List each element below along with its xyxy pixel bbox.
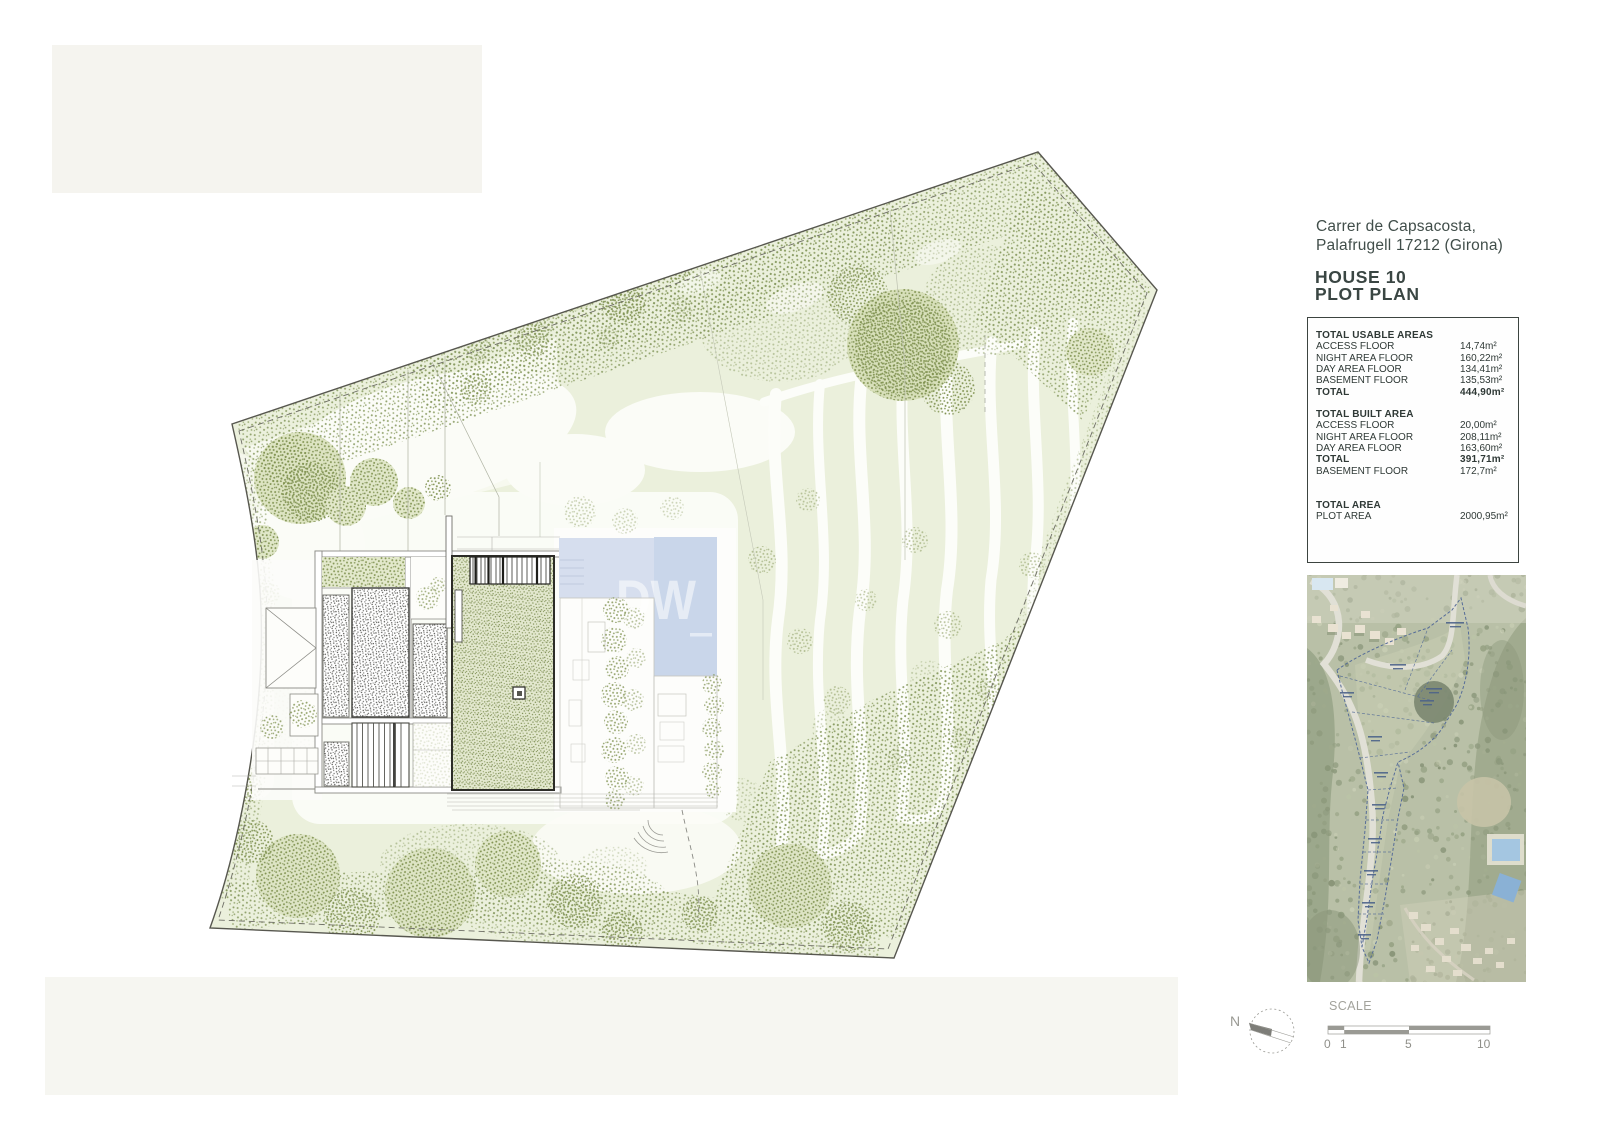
svg-text:N: N [1230, 1013, 1240, 1029]
